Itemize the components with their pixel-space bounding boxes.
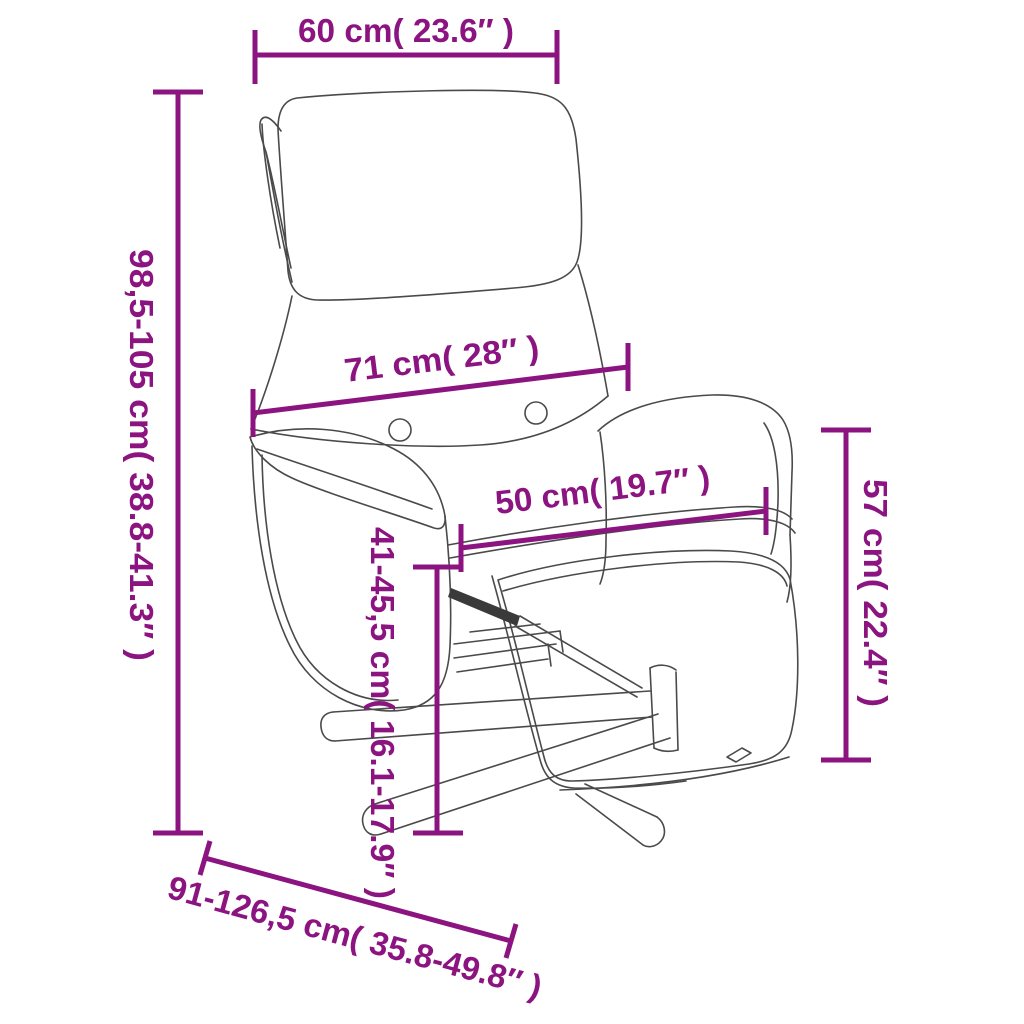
dim-armrest-height-label: 57 cm( 22.4″ ) bbox=[857, 479, 894, 707]
leg-back-left-cap bbox=[321, 712, 335, 741]
seat-footrest-panel bbox=[498, 551, 798, 781]
headrest-side-fold-inner bbox=[262, 124, 280, 248]
headrest-cushion-outline bbox=[278, 90, 581, 300]
mechanism-dark-bar bbox=[448, 588, 520, 626]
dim-seat-height: 41-45,5 cm( 16.1-17.9″ ) bbox=[364, 527, 463, 899]
backrest-right-edge bbox=[578, 265, 608, 396]
seat-footrest-piping-left bbox=[492, 576, 686, 788]
dim-headrest-width-label: 60 cm( 23.6″ ) bbox=[298, 12, 514, 49]
base-hub-right bbox=[676, 672, 678, 750]
leg-front-right-bottom bbox=[576, 794, 643, 845]
headrest-side-fold-line bbox=[266, 152, 292, 282]
mechanism-slat-2 bbox=[454, 644, 556, 658]
diagram-canvas: 60 cm( 23.6″ ) 98,5-105 cm( 38.8-41.3″ )… bbox=[0, 0, 1024, 1024]
backrest-bottom-edge bbox=[251, 396, 608, 446]
left-armrest-pad bbox=[250, 429, 445, 529]
chair-drawing bbox=[250, 90, 798, 846]
leg-front-right-top bbox=[585, 784, 657, 817]
dim-seat-height-label: 41-45,5 cm( 16.1-17.9″ ) bbox=[364, 527, 401, 899]
base-hub-bottom bbox=[654, 748, 678, 751]
left-armrest-pad-inner bbox=[257, 449, 432, 509]
base-hub-left bbox=[650, 668, 654, 748]
dim-total-height: 98,5-105 cm( 38.8-41.3″ ) bbox=[123, 92, 203, 833]
dimension-diagram: 60 cm( 23.6″ ) 98,5-105 cm( 38.8-41.3″ )… bbox=[0, 0, 1024, 1024]
left-armrest-side-panel bbox=[252, 446, 451, 711]
leg-front-right-cap bbox=[643, 817, 664, 847]
dim-seat-width: 50 cm( 19.7″ ) bbox=[461, 458, 766, 572]
right-armrest-edge-down bbox=[787, 535, 791, 602]
backrest-button-right bbox=[525, 402, 547, 424]
dim-total-depth: 91-126,5 cm( 35.8-49.8″ ) bbox=[164, 841, 546, 1005]
mechanism-link-top bbox=[520, 616, 642, 688]
dim-total-height-label: 98,5-105 cm( 38.8-41.3″ ) bbox=[123, 249, 160, 661]
dim-armrest-height: 57 cm( 22.4″ ) bbox=[821, 430, 894, 760]
leg-rear-right-tip bbox=[727, 748, 751, 762]
seat-footrest-piping-top bbox=[503, 562, 787, 591]
base-hub-top bbox=[650, 665, 676, 670]
backrest-button-left bbox=[389, 419, 411, 441]
mechanism-slat-3 bbox=[457, 659, 548, 672]
dim-headrest-width: 60 cm( 23.6″ ) bbox=[255, 12, 557, 84]
headrest-side-fold bbox=[260, 117, 291, 268]
